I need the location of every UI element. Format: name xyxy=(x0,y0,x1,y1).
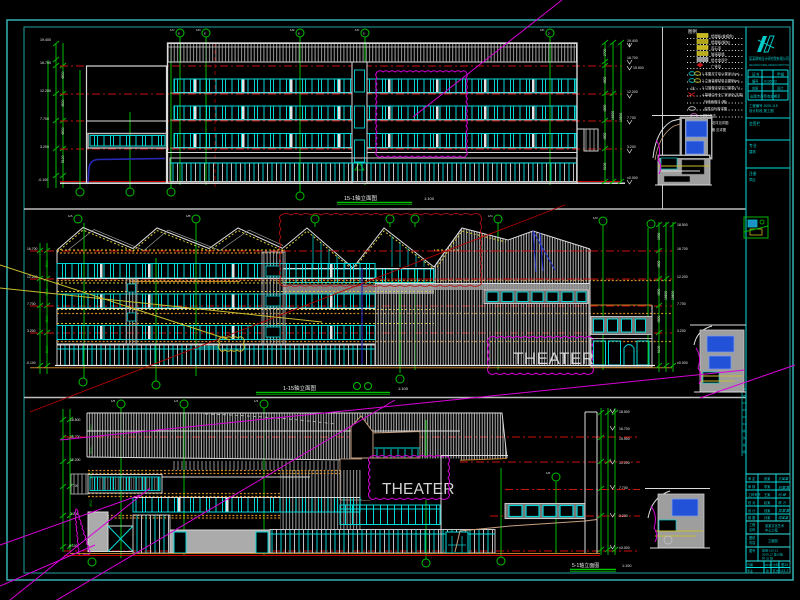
svg-text:4500: 4500 xyxy=(657,315,661,323)
svg-text:19.400: 19.400 xyxy=(627,39,638,43)
svg-text:-0.100: -0.100 xyxy=(26,361,36,365)
svg-text:编号: 编号 xyxy=(752,79,758,84)
svg-text:1/6: 1/6 xyxy=(546,471,551,475)
svg-text:工程: 工程 xyxy=(749,522,756,527)
svg-text:1/B: 1/B xyxy=(186,214,191,218)
svg-text:1/3: 1/3 xyxy=(254,399,259,403)
svg-text:铝塑板(银灰): 铝塑板(银灰) xyxy=(711,40,730,45)
svg-text:刘某某: 刘某某 xyxy=(778,485,791,490)
svg-text:图纸: 图纸 xyxy=(749,535,756,540)
svg-text:4.幕墙由专业厂家深化(支架): 4.幕墙由专业厂家深化(支架) xyxy=(702,92,743,97)
svg-text:3.200: 3.200 xyxy=(677,329,686,333)
svg-text:比例: 比例 xyxy=(773,562,779,567)
svg-text:4500: 4500 xyxy=(45,288,49,296)
svg-text:图15: 图15 xyxy=(781,563,788,567)
svg-text:金属百叶窗详图: 金属百叶窗详图 xyxy=(704,106,728,111)
svg-text:3000: 3000 xyxy=(657,232,661,240)
svg-text:2700: 2700 xyxy=(603,48,607,56)
svg-text:05: 05 xyxy=(743,394,747,398)
svg-text:设 计: 设 计 xyxy=(748,508,756,513)
svg-text:外墙面做法 (略): 外墙面做法 (略) xyxy=(704,99,727,104)
svg-text:审 定: 审 定 xyxy=(748,476,756,481)
svg-text:5100: 5100 xyxy=(45,345,49,353)
svg-text:7.700: 7.700 xyxy=(40,117,49,121)
svg-text:铝塑板(香槟色): 铝塑板(香槟色) xyxy=(711,34,734,39)
svg-text:12.200: 12.200 xyxy=(70,458,80,462)
svg-text:4500: 4500 xyxy=(45,315,49,323)
svg-text:3.门窗做法详见门窗表(个): 3.门窗做法详见门窗表(个) xyxy=(702,85,740,90)
svg-text:4500: 4500 xyxy=(657,288,661,296)
svg-text:4500: 4500 xyxy=(603,132,607,140)
svg-text:02: 02 xyxy=(743,415,747,419)
svg-text:3.200: 3.200 xyxy=(27,329,36,333)
svg-text:中心工程: 中心工程 xyxy=(765,528,779,533)
svg-text:明: 明 xyxy=(743,450,746,454)
svg-text:1-15轴立面图: 1-15轴立面图 xyxy=(283,384,317,392)
svg-text:铝合金百叶: 铝合金百叶 xyxy=(711,58,729,63)
svg-text:7.700: 7.700 xyxy=(27,302,36,306)
svg-text:19600: 19600 xyxy=(671,291,675,300)
svg-text:工程编号 2009-115: 工程编号 2009-115 xyxy=(749,103,778,108)
svg-text:3.200: 3.200 xyxy=(619,514,628,518)
svg-text:4500: 4500 xyxy=(61,71,65,79)
svg-text:15.900: 15.900 xyxy=(619,437,630,441)
svg-text:真石漆: 真石漆 xyxy=(711,46,722,51)
svg-text:张某: 张某 xyxy=(764,476,771,481)
svg-text:1/4: 1/4 xyxy=(174,399,179,403)
svg-text:7.700: 7.700 xyxy=(627,116,636,120)
svg-text:2010: 2010 xyxy=(765,563,772,567)
svg-text:说: 说 xyxy=(743,442,746,447)
svg-text:16.700: 16.700 xyxy=(627,56,638,60)
svg-text:次: 次 xyxy=(743,435,746,440)
svg-text:5100: 5100 xyxy=(603,162,607,170)
svg-text:16800: 16800 xyxy=(611,111,615,120)
svg-text:18.500: 18.500 xyxy=(70,418,80,422)
svg-text:3.200: 3.200 xyxy=(627,145,636,149)
svg-text:1/A: 1/A xyxy=(68,214,73,218)
svg-text:钱某: 钱某 xyxy=(764,508,771,513)
svg-text:日期: 日期 xyxy=(747,562,753,567)
svg-text:3.200: 3.200 xyxy=(40,145,49,149)
svg-text:建: 建 xyxy=(766,568,769,573)
svg-text:12.200: 12.200 xyxy=(619,461,630,465)
svg-text:15.900: 15.900 xyxy=(633,66,644,70)
svg-text:内容: 内容 xyxy=(749,540,756,545)
svg-text:16.700: 16.700 xyxy=(27,247,37,251)
svg-text:18.500: 18.500 xyxy=(619,410,630,414)
svg-text:制 图: 制 图 xyxy=(748,515,755,520)
svg-text:专业: 专业 xyxy=(749,143,757,148)
svg-text:04: 04 xyxy=(743,401,747,405)
svg-text:会签栏: 会签栏 xyxy=(749,121,761,126)
svg-text:章区: 章区 xyxy=(749,177,756,182)
svg-text:1.本图尺寸均以毫米计(m): 1.本图尺寸均以毫米计(m) xyxy=(702,71,739,76)
svg-text:广告位: 广告位 xyxy=(711,64,722,69)
svg-text:4500: 4500 xyxy=(61,99,65,107)
svg-text:1/E: 1/E xyxy=(290,28,295,32)
svg-text:设计阶段 施工图: 设计阶段 施工图 xyxy=(749,108,774,113)
svg-text:-0.100: -0.100 xyxy=(38,178,48,182)
svg-text:名称: 名称 xyxy=(749,527,756,532)
svg-text:立面图: 立面图 xyxy=(768,538,778,543)
svg-text:设计: 设计 xyxy=(777,86,784,91)
svg-text:吴某某: 吴某某 xyxy=(778,508,791,513)
svg-text:某某建筑设计研究院有限公司: 某某建筑设计研究院有限公司 xyxy=(749,55,789,62)
svg-text:1:100: 1:100 xyxy=(424,196,435,201)
svg-text:玻璃幕墙: 玻璃幕墙 xyxy=(711,52,725,57)
svg-text:4500: 4500 xyxy=(89,499,93,507)
svg-text:工种负责: 工种负责 xyxy=(748,492,761,497)
svg-text:建筑: 建筑 xyxy=(749,149,756,154)
svg-text:图号: 图号 xyxy=(749,548,755,553)
svg-text:19.400: 19.400 xyxy=(40,38,51,42)
svg-text:注册: 注册 xyxy=(749,171,757,176)
svg-text:图例: 图例 xyxy=(688,28,697,35)
svg-text:THEATER: THEATER xyxy=(382,481,455,498)
svg-text:资质: 资质 xyxy=(752,86,759,91)
svg-text:16.700: 16.700 xyxy=(40,61,51,65)
svg-text:19500: 19500 xyxy=(619,113,623,122)
svg-text:5100: 5100 xyxy=(61,155,65,163)
svg-text:王某某: 王某某 xyxy=(778,477,789,481)
svg-text:甲级: 甲级 xyxy=(777,72,785,77)
svg-text:115-2: 115-2 xyxy=(780,569,789,573)
svg-text:18.500: 18.500 xyxy=(677,223,688,227)
svg-text:7.700: 7.700 xyxy=(677,302,686,306)
svg-text:±0.000: ±0.000 xyxy=(677,361,688,365)
svg-text:1:100: 1:100 xyxy=(622,564,632,568)
svg-text:4500: 4500 xyxy=(603,104,607,112)
svg-text:±0.000: ±0.000 xyxy=(619,546,630,550)
svg-text:4500: 4500 xyxy=(61,127,65,135)
svg-text:王某: 王某 xyxy=(764,492,771,497)
svg-text:7.700: 7.700 xyxy=(619,486,628,490)
svg-text:03: 03 xyxy=(743,408,747,412)
svg-text:01: 01 xyxy=(743,422,747,426)
svg-text:16.700: 16.700 xyxy=(619,427,630,431)
svg-text:12.200: 12.200 xyxy=(677,275,688,279)
svg-text:共 32 张: 共 32 张 xyxy=(762,556,773,561)
svg-text:4500: 4500 xyxy=(45,260,49,268)
svg-text:孙某: 孙某 xyxy=(764,515,771,520)
svg-text:15-1轴立面图: 15-1轴立面图 xyxy=(344,194,378,202)
svg-text:审 核: 审 核 xyxy=(748,484,756,489)
svg-text:1/5: 1/5 xyxy=(111,399,116,403)
svg-text:1/K: 1/K xyxy=(540,28,545,32)
svg-text:5100: 5100 xyxy=(657,345,661,353)
svg-text:证书: 证书 xyxy=(752,72,760,77)
svg-text:李某: 李某 xyxy=(764,484,771,489)
svg-text:ARCHITECTURAL DESIGN INSTITUTE: ARCHITECTURAL DESIGN INSTITUTE xyxy=(749,63,789,67)
svg-text:5-1轴立面图: 5-1轴立面图 xyxy=(572,562,599,569)
svg-text:A136002: A136002 xyxy=(764,80,777,84)
svg-text:16.700: 16.700 xyxy=(677,247,688,251)
svg-text:注:: 注: xyxy=(691,86,696,91)
svg-text:校 对: 校 对 xyxy=(748,500,756,505)
svg-text:4500: 4500 xyxy=(603,76,607,84)
svg-text:1:100: 1:100 xyxy=(398,386,409,391)
svg-text:2.立面装修材料见图例(m): 2.立面装修材料见图例(m) xyxy=(702,78,739,83)
svg-text:版: 版 xyxy=(743,428,746,433)
svg-text:某某文化艺术: 某某文化艺术 xyxy=(765,523,785,528)
svg-text:页次: 页次 xyxy=(773,568,779,573)
svg-text:4500: 4500 xyxy=(657,260,661,268)
svg-text:周某某: 周某某 xyxy=(778,516,789,520)
svg-text:专业: 专业 xyxy=(747,568,753,573)
svg-text:16600: 16600 xyxy=(664,291,668,300)
svg-text:赵某: 赵某 xyxy=(764,500,771,505)
svg-text:±0.000: ±0.000 xyxy=(627,176,638,180)
svg-text:12.200: 12.200 xyxy=(40,89,51,93)
svg-text:12.200: 12.200 xyxy=(627,90,638,94)
svg-text:1/F: 1/F xyxy=(355,28,360,32)
svg-text:出图专用章有效期至: 出图专用章有效期至 xyxy=(750,94,781,99)
svg-text:陈 力: 陈 力 xyxy=(778,501,786,505)
svg-text:何 峰: 何 峰 xyxy=(778,493,786,497)
